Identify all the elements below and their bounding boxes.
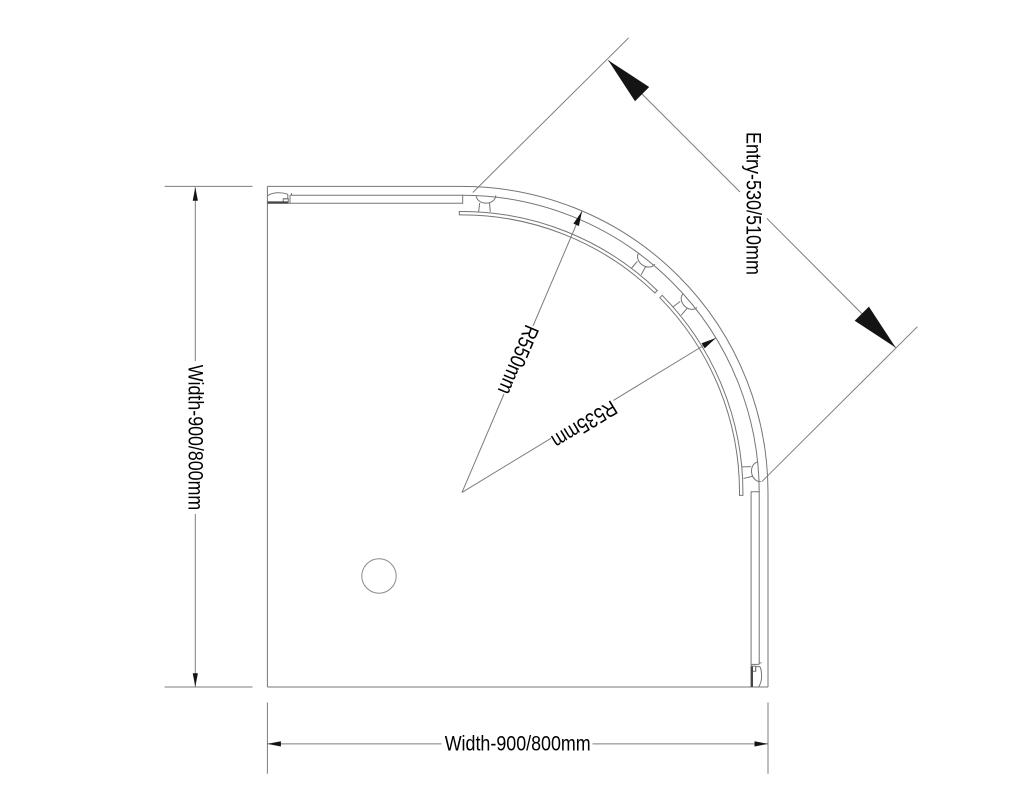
svg-text:Width-900/800mm: Width-900/800mm bbox=[184, 365, 208, 511]
svg-text:Width-900/800mm: Width-900/800mm bbox=[445, 732, 591, 756]
svg-text:Entry-530/510mm: Entry-530/510mm bbox=[742, 132, 766, 275]
